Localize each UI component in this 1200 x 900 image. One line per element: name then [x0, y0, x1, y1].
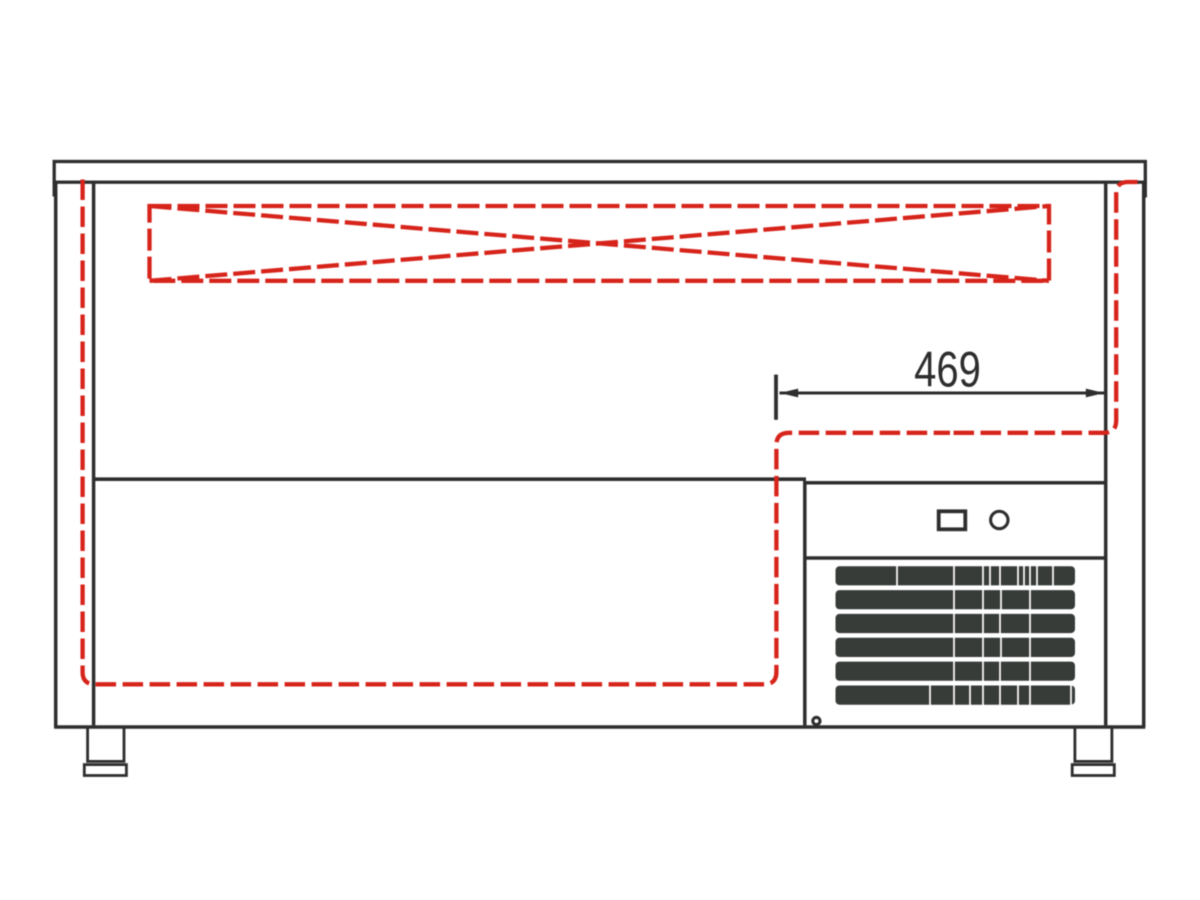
- svg-text:469: 469: [914, 341, 981, 397]
